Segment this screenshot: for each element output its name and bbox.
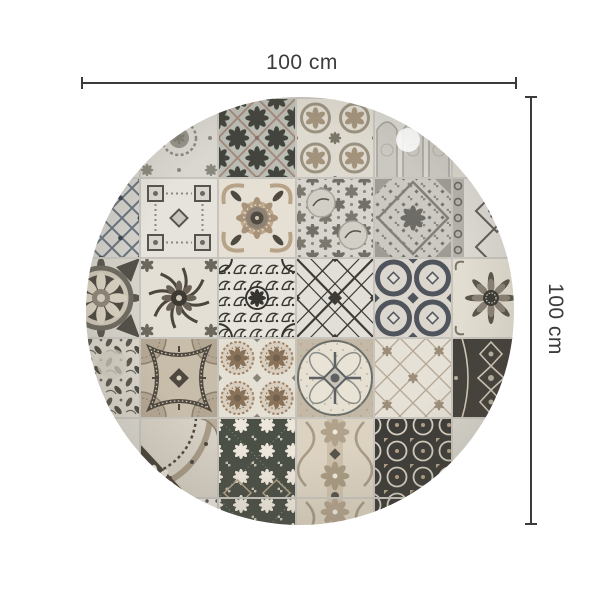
width-dimension-label: 100 cm — [240, 50, 364, 76]
rug-tile-darkLattice — [374, 498, 452, 578]
width-dimension-line — [82, 77, 516, 89]
product-dimension-diagram: 100 cm 100 cm — [0, 0, 600, 600]
edge-shading-overlay — [86, 97, 514, 525]
height-dimension-line — [525, 97, 537, 524]
height-dimension-label: 100 cm — [542, 259, 568, 379]
diagram-svg — [0, 0, 600, 600]
rug-image — [62, 97, 530, 578]
rug-tile-lightDots — [140, 498, 218, 578]
